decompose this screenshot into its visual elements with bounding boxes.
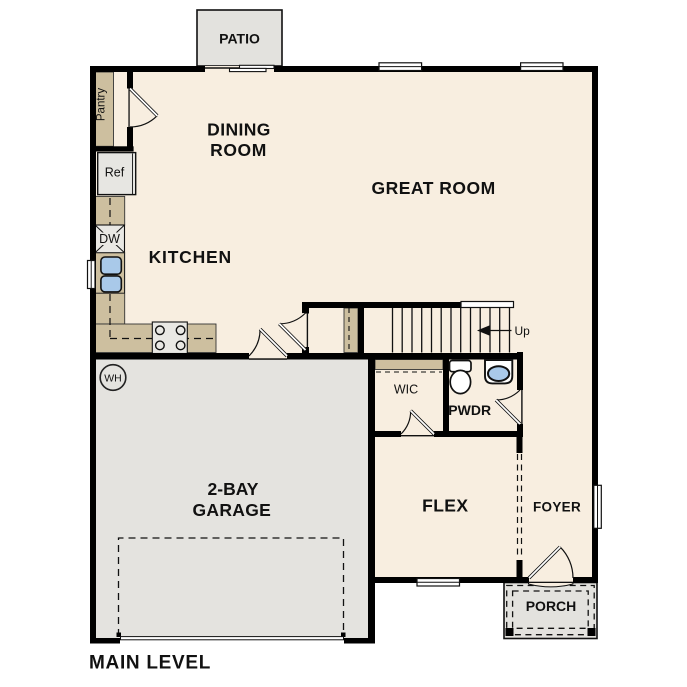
svg-text:PORCH: PORCH [526, 598, 577, 614]
svg-text:2-BAY: 2-BAY [208, 479, 259, 499]
svg-text:MAIN LEVEL: MAIN LEVEL [89, 653, 211, 674]
svg-text:FLEX: FLEX [422, 496, 468, 516]
svg-text:KITCHEN: KITCHEN [149, 247, 232, 267]
svg-text:Ref: Ref [105, 166, 125, 180]
svg-text:DW: DW [99, 232, 120, 246]
svg-text:WH: WH [104, 372, 122, 384]
svg-text:Pantry: Pantry [96, 88, 108, 121]
svg-text:Up: Up [515, 324, 531, 338]
svg-text:PATIO: PATIO [219, 31, 260, 47]
svg-text:GARAGE: GARAGE [192, 500, 271, 520]
svg-text:GREAT ROOM: GREAT ROOM [371, 178, 495, 198]
svg-text:DINING: DINING [207, 120, 271, 140]
svg-text:FOYER: FOYER [533, 500, 581, 515]
svg-text:PWDR: PWDR [448, 402, 491, 418]
svg-text:WIC: WIC [394, 383, 418, 397]
svg-text:ROOM: ROOM [210, 140, 267, 160]
